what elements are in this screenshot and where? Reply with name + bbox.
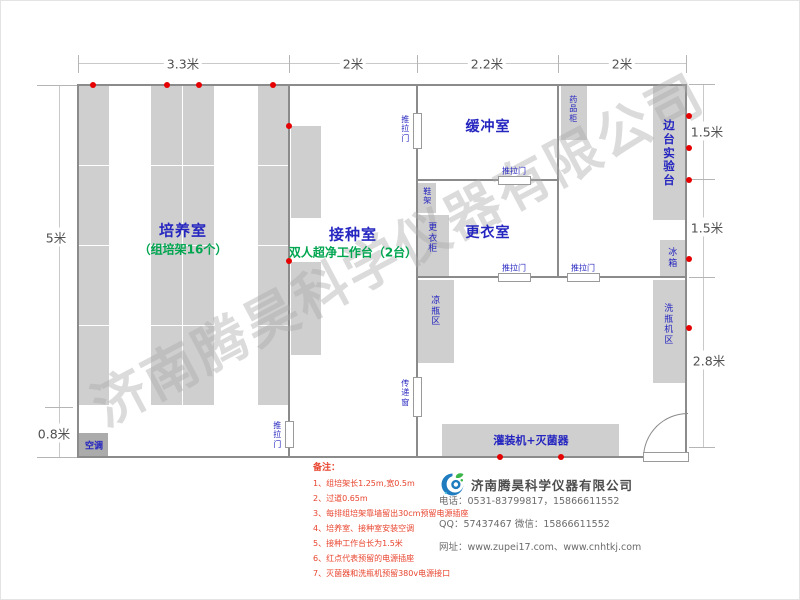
power-socket-dot xyxy=(558,454,564,460)
dim-tick xyxy=(37,457,77,458)
company-website: 网址：www.zupei17.com、www.cnhtkj.com xyxy=(439,539,641,553)
culture-rack-row-1 xyxy=(79,86,109,406)
clean-bench-1 xyxy=(291,126,321,218)
dim-right-2: 1.5米 xyxy=(688,218,726,237)
dim-left-1: 5米 xyxy=(43,228,69,247)
sliding-door-culture-inoculation xyxy=(285,421,294,448)
power-socket-dot xyxy=(196,82,202,88)
dim-top-2: 2米 xyxy=(340,54,366,73)
power-socket-dot xyxy=(686,325,692,331)
wall-left xyxy=(77,84,79,458)
filling-machine-label: 灌装机+灭菌器 xyxy=(493,432,568,448)
sliding-door-label: 推拉门 xyxy=(273,421,281,449)
sliding-door-washroom xyxy=(567,273,600,282)
wall-bottom xyxy=(77,456,687,458)
dim-tick xyxy=(689,447,715,448)
dim-tick xyxy=(686,55,687,73)
air-conditioner-label: 空调 xyxy=(85,439,103,452)
pass-window-label: 传递窗 xyxy=(401,379,409,407)
dim-tick xyxy=(689,179,715,180)
power-socket-dot xyxy=(90,82,96,88)
dim-tick xyxy=(689,277,715,278)
power-socket-dot xyxy=(270,82,276,88)
floor-plan-canvas: 济南腾昊科学仪器有限公司 3.3米 2米 2.2米 2米 5米 0.8米 1.5… xyxy=(0,0,800,600)
power-socket-dot xyxy=(286,258,292,264)
room-label-buffer: 缓冲室 xyxy=(466,116,511,136)
locker-label: 更衣柜 xyxy=(428,223,437,255)
entrance-door-leaf xyxy=(643,452,689,462)
dim-tick xyxy=(45,407,73,408)
sliding-door-label: 推拉门 xyxy=(502,263,526,274)
shoe-rack-label: 鞋架 xyxy=(423,187,431,206)
dim-top-4: 2米 xyxy=(609,54,635,73)
dim-tick xyxy=(289,55,290,73)
company-name: 济南腾昊科学仪器有限公司 xyxy=(471,475,633,494)
power-socket-dot xyxy=(686,145,692,151)
company-qq-wechat: QQ：57437467 微信：15866611552 xyxy=(439,516,610,530)
dim-tick xyxy=(558,55,559,73)
note-item: 6、红点代表预留的电源插座 xyxy=(313,551,468,566)
dim-top-3: 2.2米 xyxy=(468,54,506,73)
sliding-door-changing-south xyxy=(498,273,531,282)
dim-top-1: 3.3米 xyxy=(164,54,202,73)
dim-tick xyxy=(417,55,418,73)
pass-window-opening xyxy=(413,377,422,417)
sliding-door-label: 推拉门 xyxy=(502,166,526,177)
company-phone: 电话：0531-83799817，15866611552 xyxy=(439,493,619,507)
clean-bench-2 xyxy=(291,262,321,355)
sliding-door-inoculation-buffer xyxy=(413,113,422,149)
power-socket-dot xyxy=(286,123,292,129)
power-socket-dot xyxy=(497,454,503,460)
wall-culture-inoculation xyxy=(288,84,290,458)
dim-left-2: 0.8米 xyxy=(35,424,73,443)
wall-buffer-changing xyxy=(416,179,559,181)
bottle-washer-label: 洗瓶机区 xyxy=(664,304,673,346)
sliding-door-label: 推拉门 xyxy=(401,115,409,143)
dim-tick xyxy=(689,84,715,85)
dim-tick xyxy=(37,85,77,86)
dim-right-1: 1.5米 xyxy=(688,122,726,141)
dim-right-3: 2.8米 xyxy=(690,351,728,370)
wall-changing-south xyxy=(416,276,687,278)
cooling-bottle-label: 凉瓶区 xyxy=(431,296,440,328)
medicine-cabinet-label: 药品柜 xyxy=(569,95,577,123)
power-socket-dot xyxy=(686,256,692,262)
room-label-cultivation: 培养室 xyxy=(159,220,207,241)
power-socket-dot xyxy=(686,177,692,183)
power-socket-dot xyxy=(686,113,692,119)
dim-tick xyxy=(78,55,79,73)
dim-line-left xyxy=(59,85,60,458)
side-bench-label: 边台实验台 xyxy=(663,119,675,188)
room-sublabel-inoculation: 双人超净工作台（2台） xyxy=(289,244,417,261)
wall-buffer-east xyxy=(557,84,559,278)
sliding-door-buffer-changing xyxy=(498,176,531,185)
power-socket-dot xyxy=(164,82,170,88)
room-label-inoculation: 接种室 xyxy=(329,224,377,245)
room-sublabel-cultivation: （组培架16个） xyxy=(139,241,228,258)
sliding-door-label: 推拉门 xyxy=(571,263,595,274)
wall-right xyxy=(685,84,687,458)
culture-rack-row-4 xyxy=(258,86,288,406)
room-label-changing: 更衣室 xyxy=(466,222,511,242)
fridge-label: 冰箱 xyxy=(668,248,677,269)
note-item: 7、灭菌器和洗瓶机预留380v电源接口 xyxy=(313,566,468,581)
